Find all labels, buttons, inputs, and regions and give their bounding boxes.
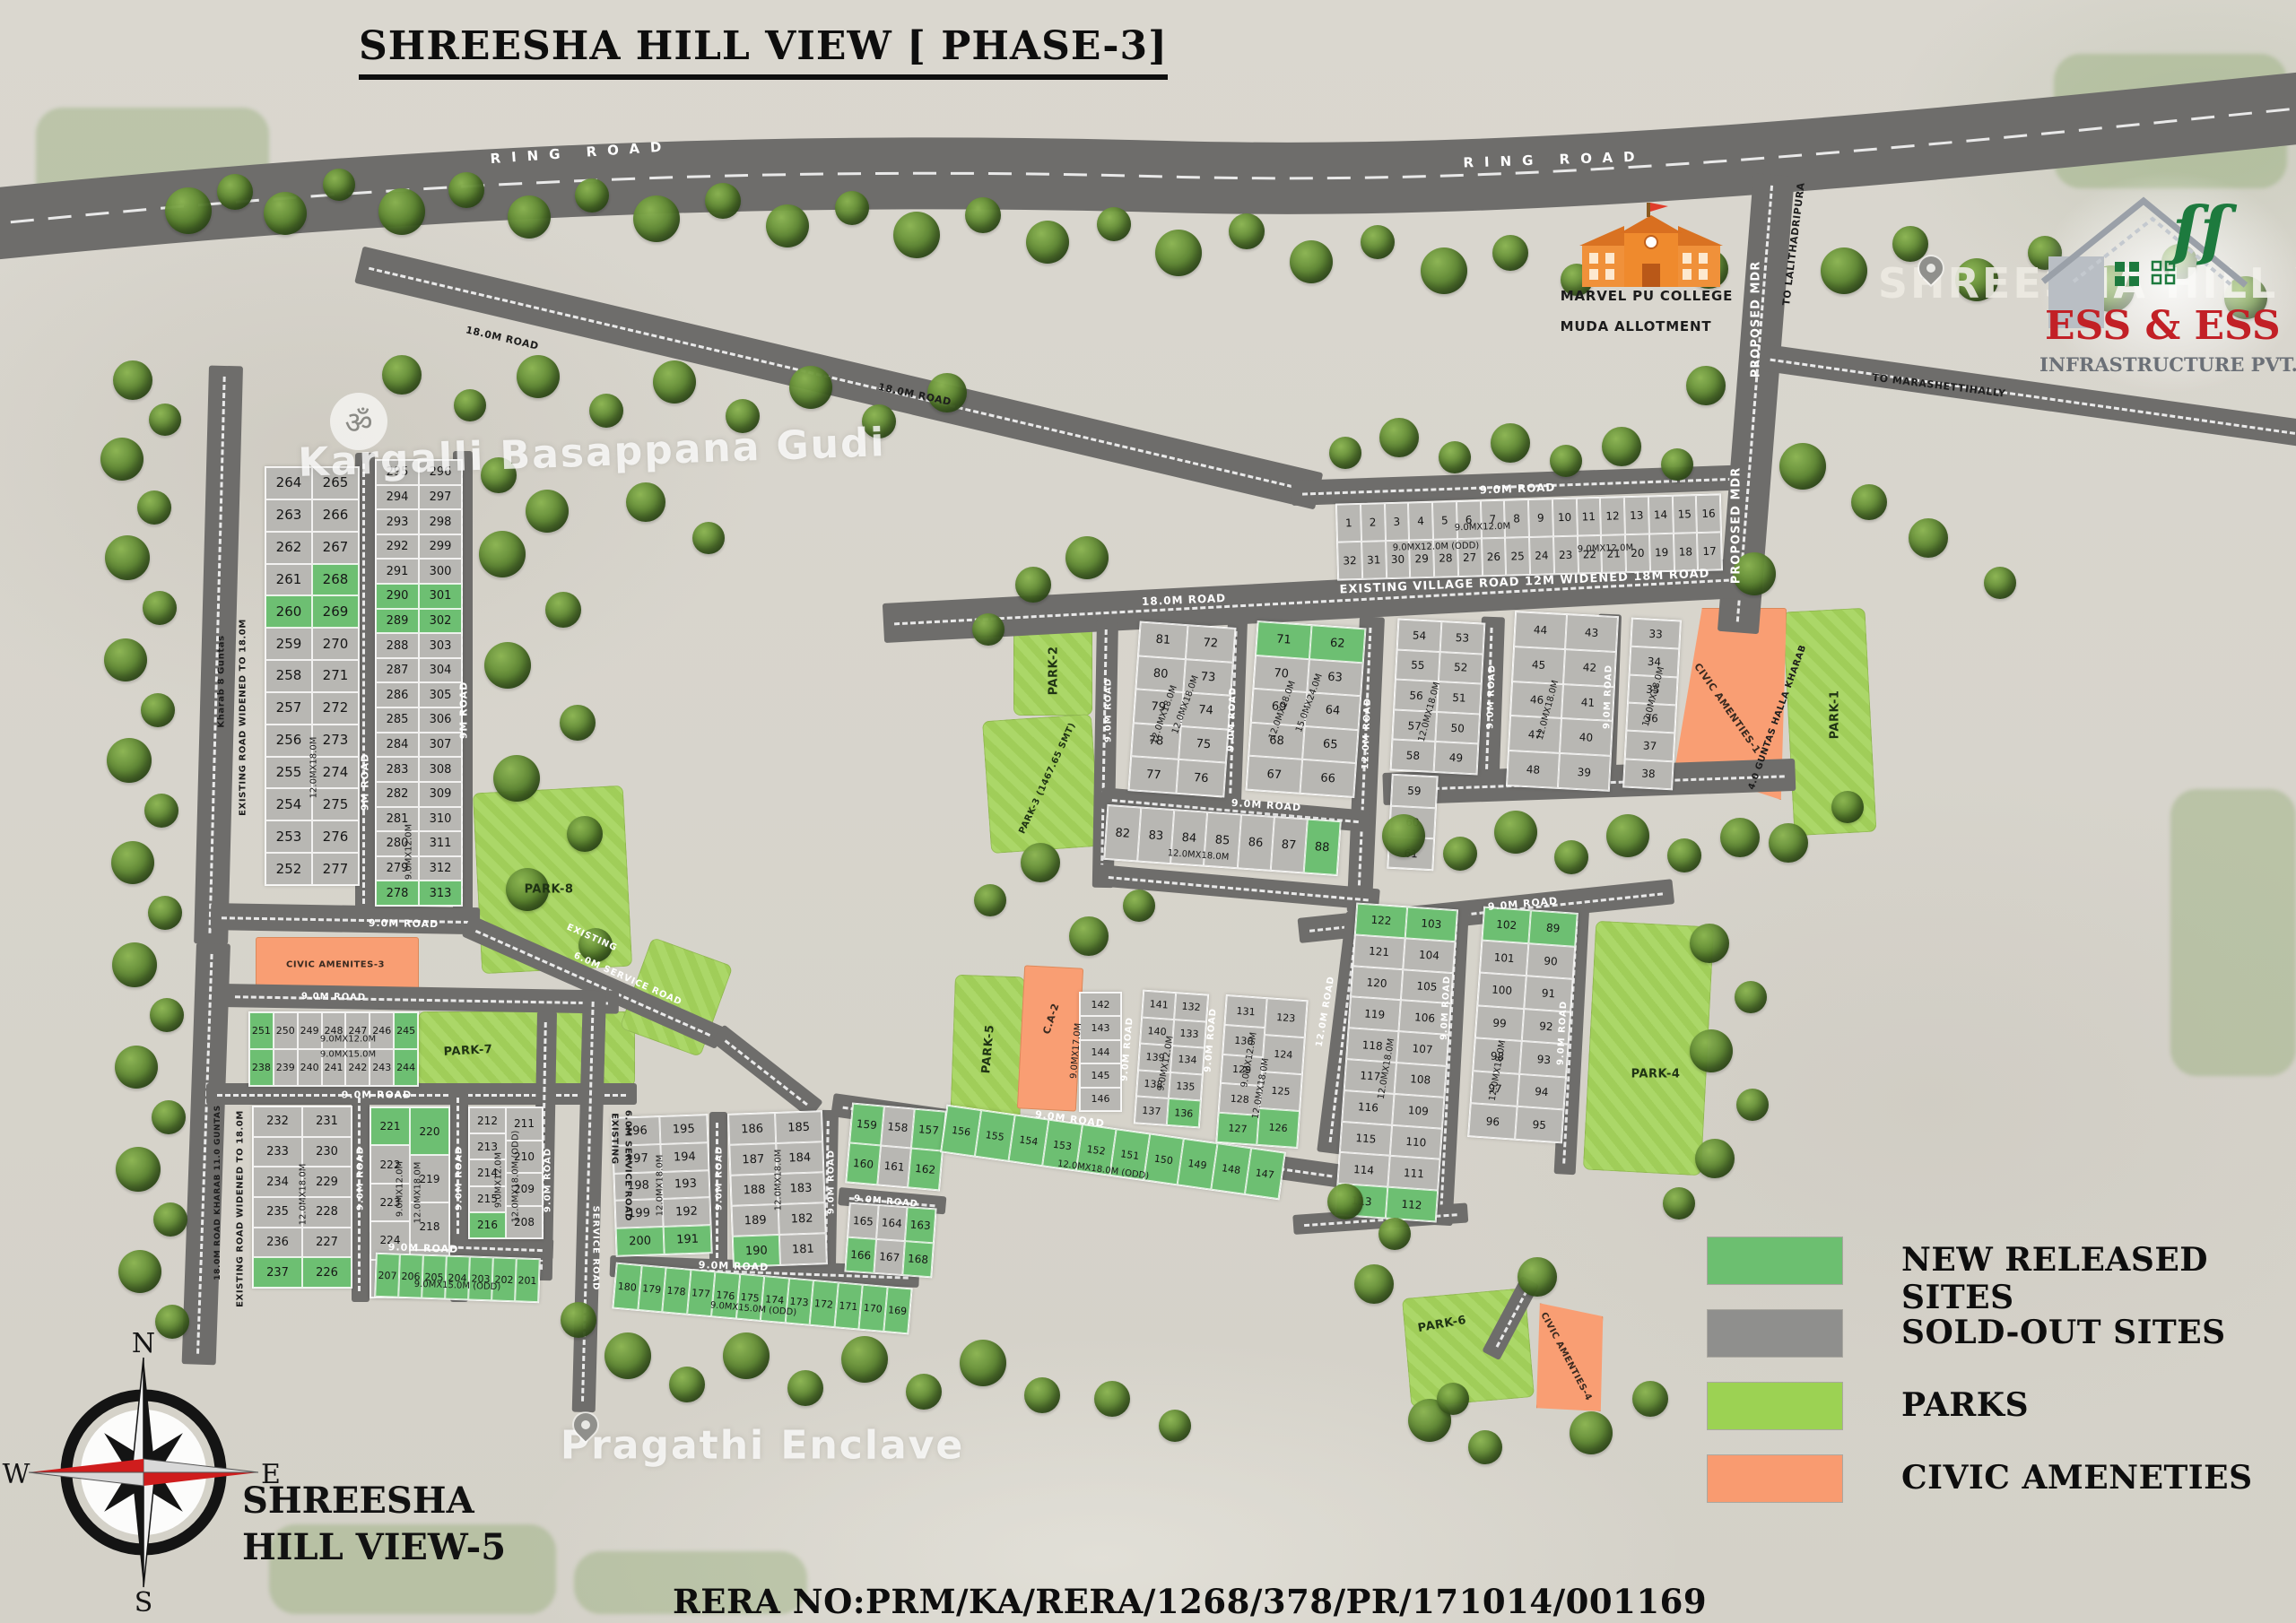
plot-313: 313 [419,881,462,906]
plot-172: 172 [810,1280,839,1327]
tree-icon [1602,427,1641,466]
plot-292: 292 [376,534,419,560]
plot-block-A1: 2642632622612602592582572562552542532522… [265,466,360,886]
tree-icon [1065,536,1109,579]
plot-82: 82 [1104,805,1141,861]
plot-245: 245 [394,1012,418,1049]
tree-icon [143,591,177,625]
map-label: MUDA ALLOTMENT [1561,318,1712,334]
map-label: 9.0MX12.0M [404,824,414,880]
tree-icon [454,389,486,421]
tree-icon [1229,213,1265,249]
plot-307: 307 [419,733,462,758]
plot-171: 171 [834,1282,863,1329]
plot-51: 51 [1437,681,1482,714]
plot-304: 304 [419,658,462,683]
tree-icon [1361,225,1395,259]
plot-230: 230 [302,1137,352,1167]
company-logo: ſſ ESS & ESS INFRASTRUCTURE PVT. LTD. [2038,176,2296,391]
plot-99: 99 [1475,1005,1524,1041]
tree-icon [1327,1184,1363,1219]
plot-14: 14 [1648,496,1674,534]
plot-77: 77 [1129,757,1178,794]
tree-icon [1468,1430,1502,1464]
plot-110: 110 [1390,1124,1442,1159]
plot-19: 19 [1649,534,1674,572]
tree-icon [1909,518,1948,558]
plot-229: 229 [302,1167,352,1197]
plot-278: 278 [376,881,419,906]
plot-121: 121 [1352,934,1405,969]
plot-180: 180 [613,1263,641,1310]
plot-114: 114 [1337,1152,1389,1187]
map-label: 9.0MX12.0M [396,1161,405,1217]
tree-icon [841,1336,888,1383]
tree-icon [165,187,212,234]
tree-icon [1695,1139,1735,1178]
tree-icon [479,531,526,577]
plot-204: 204 [445,1256,470,1300]
school-icon [1575,199,1727,298]
plot-256: 256 [265,725,312,757]
plot-310: 310 [419,807,462,832]
plot-block-A2: 2952942932922912902892882872862852842832… [375,459,463,907]
tree-icon [1736,1089,1769,1121]
tree-icon [692,522,725,554]
plot-block-D1: 159158157160161162 [845,1103,946,1192]
map-label: PROPOSED MDR [1750,261,1763,378]
plot-120: 120 [1351,966,1403,1001]
map-label: 12.0MX18.0M [774,1150,784,1211]
plot-205: 205 [422,1255,447,1299]
plot-block-D2: 165164163166167168 [844,1202,936,1279]
map-label: 9M ROAD [360,753,371,811]
tree-icon [1379,418,1419,457]
plot-253: 253 [265,820,312,853]
plot-48: 48 [1507,751,1560,788]
map-label: 12.0MX18.0M [309,737,319,799]
plot-123: 123 [1265,998,1308,1037]
plot-50: 50 [1435,712,1480,744]
tree-icon [1518,1257,1557,1297]
plot-100: 100 [1477,973,1526,1009]
tree-icon [1354,1264,1394,1304]
plot-303: 303 [419,633,462,658]
map-label: Kharab 8 Guntas [217,635,227,727]
compass-rose: N E S W [0,1329,287,1616]
plot-170: 170 [858,1285,887,1332]
plot-45: 45 [1512,647,1565,684]
plot-76: 76 [1176,759,1225,796]
tree-icon [1606,814,1649,857]
plot-164: 164 [876,1205,908,1241]
map-label: 12.0MX18.0M (ODD) [511,1131,521,1223]
plot-216: 216 [469,1212,506,1238]
tree-icon [137,490,171,525]
plot-55: 55 [1396,649,1440,681]
map-label: 6.0M SERVICE ROAD [623,1110,633,1221]
tree-icon [1984,567,2016,599]
map-label: 9.0M ROAD [342,1089,412,1101]
tree-icon [1329,437,1361,469]
plot-301: 301 [419,584,462,609]
plot-181: 181 [779,1233,827,1265]
plot-147: 147 [1245,1148,1285,1199]
plot-277: 277 [312,853,359,885]
map-label: EXISTING ROAD WIDENED TO 18.0M [239,619,248,816]
plot-293: 293 [376,509,419,534]
tree-icon [1097,207,1131,241]
tree-icon [105,535,150,580]
tree-icon [787,1370,823,1406]
plot-273: 273 [312,725,359,757]
temple-om-icon: ॐ [330,393,387,450]
plot-220: 220 [410,1107,449,1155]
tree-icon [1550,445,1582,477]
tree-icon [960,1340,1006,1386]
plot-192: 192 [663,1198,711,1228]
tree-icon [1494,811,1537,854]
plot-257: 257 [265,692,312,725]
plot-81: 81 [1138,622,1187,659]
plot-182: 182 [778,1202,826,1235]
map-label: 9.0MX12.0M [320,1035,376,1045]
plot-259: 259 [265,628,312,660]
plot-188: 188 [730,1174,778,1206]
map-label: 9.0MX12.0M [494,1152,504,1208]
map-label: 9.0M ROAD [369,917,439,930]
legend-swatch [1708,1383,1842,1429]
tree-icon [1443,837,1477,871]
tree-icon [378,188,425,235]
plot-191: 191 [664,1225,712,1254]
plot-239: 239 [274,1049,298,1086]
plot-141: 141 [1142,991,1176,1020]
plot-66: 66 [1300,759,1355,797]
plot-1: 1 [1336,504,1361,542]
plot-291: 291 [376,559,419,584]
plot-173: 173 [785,1278,813,1324]
tree-icon [1026,221,1069,264]
plot-312: 312 [419,856,462,881]
plot-94: 94 [1518,1074,1566,1110]
plot-165: 165 [848,1203,879,1239]
tree-icon [1439,441,1471,473]
tree-icon [789,366,832,409]
page-title: SHREESHA HILL VIEW [ PHASE-3] [359,23,1168,80]
tree-icon [1069,916,1109,956]
plot-39: 39 [1558,753,1611,791]
legend-label: CIVIC AMENETIES [1901,1459,2253,1497]
plot-168: 168 [902,1241,934,1277]
map-label: 12.0MX18.0M [656,1155,665,1217]
plot-49: 49 [1434,742,1479,774]
plot-block-B4: 212213214215216211210209208 [468,1107,544,1239]
legend-label: NEW RELEASED SITES [1901,1241,2296,1316]
plot-37: 37 [1625,731,1675,761]
plot-252: 252 [265,853,312,885]
plot-283: 283 [376,757,419,782]
plot-268: 268 [312,564,359,596]
tree-icon [1554,840,1588,874]
plot-212: 212 [469,1107,506,1133]
plot-249: 249 [298,1012,322,1049]
plot-20: 20 [1625,534,1650,572]
plot-17: 17 [1697,532,1722,570]
tree-icon [560,705,596,741]
plot-300: 300 [419,559,462,584]
plot-75: 75 [1178,726,1228,763]
plot-47: 47 [1509,716,1561,753]
plot-89: 89 [1528,910,1577,946]
plot-111: 111 [1387,1156,1439,1191]
project-name-line1: SHREESHA [242,1478,506,1524]
plot-65: 65 [1302,726,1358,764]
logo-subtitle: INFRASTRUCTURE PVT. LTD. [2039,353,2296,376]
tree-icon [1851,484,1887,520]
plot-4: 4 [1408,502,1433,541]
map-label: 9.0M ROAD [455,1146,465,1211]
plot-302: 302 [419,609,462,634]
plot-299: 299 [419,534,462,560]
tree-icon [972,613,1004,646]
plot-53: 53 [1440,621,1485,654]
tree-icon [1437,1383,1469,1415]
plot-62: 62 [1309,625,1365,663]
plot-159: 159 [849,1104,883,1146]
plot-8: 8 [1504,499,1529,538]
tree-icon [893,212,940,258]
tree-icon [144,794,178,828]
tree-icon [153,1202,187,1237]
tree-icon [1159,1410,1191,1442]
plot-70: 70 [1253,655,1309,693]
plot-289: 289 [376,609,419,634]
project-name: SHREESHA HILL VIEW-5 [242,1478,506,1571]
plot-227: 227 [302,1228,352,1258]
plot-43: 43 [1565,614,1618,652]
map-label: PARK-7 [443,1043,493,1059]
plot-166: 166 [845,1237,876,1273]
plot-261: 261 [265,564,312,596]
road-segment [211,903,480,934]
plot-203: 203 [468,1256,493,1300]
plot-244: 244 [394,1049,418,1086]
map-label: PROPOSED MDR [1730,467,1744,584]
plot-178: 178 [662,1268,691,1315]
plot-207: 207 [375,1254,400,1298]
tree-icon [974,884,1006,916]
map-label: 12.0MX18.0M [413,1162,423,1224]
plot-135: 135 [1169,1072,1203,1101]
map-label: EXISTING [610,1113,620,1164]
plot-309: 309 [419,782,462,807]
legend-swatch [1708,1237,1842,1284]
plot-block-G2: 44454647484342414039 [1506,611,1619,792]
plot-52: 52 [1439,652,1483,684]
plot-44: 44 [1514,612,1567,649]
map-label: 9.0MX12.0M [1455,522,1511,534]
tree-icon [906,1374,942,1410]
map-label: Pragathi Enclave [561,1423,964,1469]
plot-137: 137 [1135,1097,1169,1125]
plot-193: 193 [661,1170,709,1200]
map-label: 9.0MX12.0M [1578,543,1634,555]
plot-87: 87 [1270,817,1307,872]
plot-297: 297 [419,485,462,510]
plot-271: 271 [312,660,359,692]
plot-104: 104 [1403,938,1455,973]
plot-260: 260 [265,595,312,628]
plot-96: 96 [1468,1104,1517,1140]
tree-icon [1021,843,1060,882]
plot-162: 162 [908,1149,942,1191]
plot-294: 294 [376,485,419,510]
plot-block-B5: 207206205204203202201 [374,1253,541,1303]
plot-263: 263 [265,499,312,532]
tree-icon [1378,1218,1411,1250]
plot-298: 298 [419,509,462,534]
plot-9: 9 [1528,499,1553,537]
map-label: EXISTING ROAD WIDENED TO 18.0M [236,1110,246,1307]
plot-101: 101 [1480,940,1528,976]
map-label: CIVIC AMENITES-3 [286,960,385,970]
map-label: PARK-1 [1829,690,1842,740]
plot-13: 13 [1624,497,1649,535]
plot-131: 131 [1225,995,1267,1028]
plot-5: 5 [1432,501,1457,540]
tree-icon [141,693,175,727]
tree-icon [1570,1411,1613,1454]
plot-308: 308 [419,757,462,782]
plot-72: 72 [1186,625,1235,662]
tree-icon [1491,423,1530,463]
map-label: 9M ROAD [458,681,470,740]
plot-237: 237 [253,1257,302,1288]
logo-monogram: ſſ [2168,192,2238,268]
plot-146: 146 [1080,1088,1121,1111]
tree-icon [561,1302,596,1338]
map-label: 18.0M ROAD KHARAB 11.0 GUNTAS [213,1105,222,1280]
plot-290: 290 [376,584,419,609]
project-name-line2: HILL VIEW-5 [242,1524,506,1571]
plot-232: 232 [253,1107,302,1137]
tree-icon [1892,226,1928,262]
tree-icon [323,169,355,201]
tree-icon [1690,924,1729,963]
tree-icon [112,942,157,987]
tree-icon [1769,823,1808,863]
tree-icon [1123,890,1155,922]
tree-icon [1779,443,1826,490]
tree-icon [1155,230,1202,276]
compass-s: S [135,1587,153,1616]
tree-icon [766,204,809,247]
plot-251: 251 [249,1012,274,1049]
tree-icon [1492,235,1528,271]
plot-18: 18 [1673,533,1698,571]
tree-icon [111,841,154,884]
plot-160: 160 [846,1142,880,1185]
plot-90: 90 [1526,943,1575,979]
tree-icon [1421,247,1467,294]
plot-194: 194 [660,1142,709,1172]
tree-icon [118,1250,161,1293]
tree-icon [567,816,603,852]
plot-11: 11 [1576,498,1601,536]
tree-icon [100,438,143,481]
plot-119: 119 [1349,997,1401,1032]
tree-icon [575,178,609,213]
tree-icon [1382,814,1425,857]
legend-label: SOLD-OUT SITES [1901,1314,2226,1351]
plot-144: 144 [1080,1040,1121,1063]
plot-88: 88 [1304,820,1341,875]
map-label: 9.0M ROAD [827,1150,837,1214]
tree-icon [1667,838,1701,872]
map-label: 9.0M ROAD [356,1146,366,1211]
tree-icon [382,355,422,395]
tree-icon [517,355,560,398]
plot-288: 288 [376,633,419,658]
plot-6: 6 [1457,500,1482,539]
tree-icon [589,394,623,428]
plot-24: 24 [1529,536,1554,575]
plot-183: 183 [777,1172,824,1204]
plot-233: 233 [253,1137,302,1167]
plot-143: 143 [1080,1016,1121,1039]
tree-icon [152,1100,186,1134]
plot-179: 179 [638,1265,666,1312]
tree-icon [116,1147,161,1192]
tree-icon [653,360,696,404]
logo-name: ESS & ESS [2045,303,2281,349]
tree-icon [150,998,184,1032]
plot-311: 311 [419,831,462,856]
plot-21: 21 [1601,534,1626,573]
tree-icon [1720,818,1760,857]
plot-287: 287 [376,658,419,683]
plot-254: 254 [265,788,312,820]
plot-189: 189 [732,1204,779,1237]
legend-label: PARKS [1901,1386,2029,1424]
plot-115: 115 [1340,1122,1392,1157]
plot-228: 228 [302,1197,352,1228]
map-label: 9.0M ROAD [388,1241,459,1255]
map-label: PARK-4 [1631,1068,1681,1081]
tree-icon [107,738,152,783]
plot-22: 22 [1577,535,1602,574]
map-label: 12.0MX18.0M [299,1164,309,1226]
plot-306: 306 [419,707,462,733]
plot-32: 32 [1337,542,1362,580]
tree-icon [1663,1187,1695,1219]
plot-16: 16 [1696,494,1721,533]
plot-95: 95 [1515,1107,1563,1142]
plot-block-D3: 142143144145146 [1079,992,1122,1112]
tree-icon [723,1332,770,1379]
tree-icon [545,592,581,628]
plot-255: 255 [265,757,312,789]
tree-icon [148,896,182,930]
plot-163: 163 [905,1207,936,1243]
tree-icon [448,172,484,208]
plot-238: 238 [249,1049,274,1086]
plot-285: 285 [376,707,419,733]
plot-258: 258 [265,660,312,692]
plot-2: 2 [1361,503,1386,542]
plot-33: 33 [1631,619,1681,649]
